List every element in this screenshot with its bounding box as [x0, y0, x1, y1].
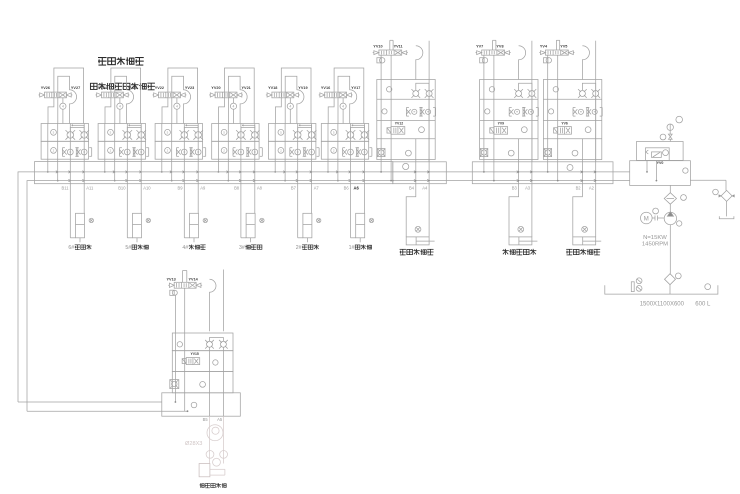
svg-text:YV0: YV0	[657, 161, 664, 165]
svg-text:B2: B2	[576, 185, 582, 190]
svg-text:6#: 6#	[68, 245, 74, 251]
svg-text:N=15KW: N=15KW	[643, 235, 667, 241]
svg-text:M: M	[644, 216, 649, 222]
svg-text:YV27: YV27	[71, 86, 80, 90]
svg-text:YV12: YV12	[395, 121, 403, 125]
svg-text:1500X1100X600: 1500X1100X600	[640, 301, 685, 307]
svg-text:A3: A3	[525, 185, 531, 190]
svg-text:YV13: YV13	[167, 277, 176, 281]
svg-text:YV18: YV18	[268, 86, 277, 90]
svg-text:YV19: YV19	[298, 86, 307, 90]
svg-text:B11: B11	[62, 185, 70, 190]
svg-text:YV10: YV10	[373, 45, 382, 49]
svg-text:B5: B5	[203, 417, 209, 422]
svg-text:A10: A10	[143, 185, 151, 190]
svg-text:1450RPM: 1450RPM	[642, 241, 668, 247]
svg-text:4: 4	[342, 105, 344, 109]
svg-text:A4: A4	[422, 185, 428, 190]
svg-text:B4: B4	[409, 185, 415, 190]
svg-text:A8: A8	[257, 185, 263, 190]
svg-text:YV20: YV20	[211, 86, 220, 90]
svg-text:YV26: YV26	[41, 86, 50, 90]
svg-text:B9: B9	[177, 185, 183, 190]
svg-text:YV22: YV22	[155, 86, 164, 90]
svg-text:YV5: YV5	[560, 45, 567, 49]
svg-text:4: 4	[289, 105, 291, 109]
svg-text:4: 4	[176, 105, 178, 109]
svg-text:A7: A7	[314, 185, 320, 190]
svg-text:A5: A5	[217, 417, 223, 422]
svg-text:YV21: YV21	[242, 86, 251, 90]
svg-text:YV25: YV25	[128, 86, 137, 90]
svg-text:YV23: YV23	[185, 86, 194, 90]
svg-text:A9: A9	[200, 185, 206, 190]
svg-text:B8: B8	[234, 185, 240, 190]
svg-text:A11: A11	[86, 185, 94, 190]
svg-text:B10: B10	[118, 185, 126, 190]
svg-text:B3: B3	[512, 185, 518, 190]
svg-text:A2: A2	[589, 185, 595, 190]
svg-text:YV7: YV7	[476, 45, 483, 49]
svg-text:YV15: YV15	[191, 352, 199, 356]
svg-text:600 L: 600 L	[695, 301, 711, 307]
svg-text:YV4: YV4	[540, 45, 548, 49]
svg-text:YV17: YV17	[351, 86, 360, 90]
svg-text:4#: 4#	[182, 245, 188, 251]
svg-text:5#: 5#	[125, 245, 131, 251]
svg-text:Ø28X3: Ø28X3	[185, 441, 202, 447]
svg-text:YV14: YV14	[189, 277, 199, 281]
svg-text:A6: A6	[354, 185, 360, 190]
svg-text:B6: B6	[344, 185, 350, 190]
svg-text:B7: B7	[291, 185, 297, 190]
svg-text:YV11: YV11	[394, 45, 403, 49]
svg-text:4: 4	[62, 105, 64, 109]
svg-text:4: 4	[119, 105, 121, 109]
svg-text:YV6: YV6	[561, 121, 568, 125]
svg-text:1#: 1#	[349, 245, 355, 251]
svg-text:YV9: YV9	[498, 121, 505, 125]
svg-text:YV24: YV24	[98, 86, 108, 90]
svg-text:YV16: YV16	[321, 86, 330, 90]
svg-text:2#: 2#	[296, 245, 302, 251]
svg-text:4: 4	[233, 105, 235, 109]
svg-text:YV8: YV8	[496, 45, 503, 49]
svg-text:3#: 3#	[239, 245, 245, 251]
